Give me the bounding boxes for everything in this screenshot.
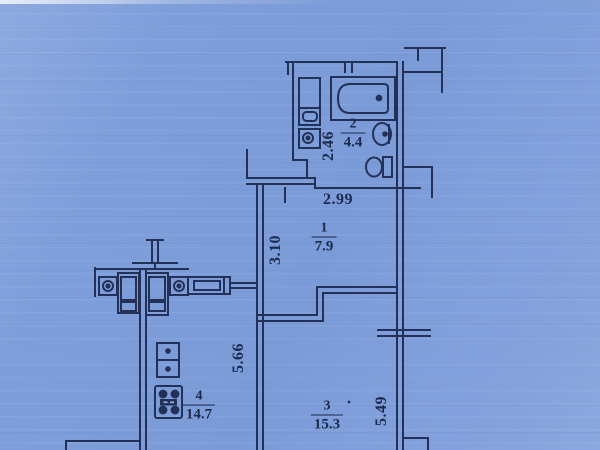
dim-bathroom-width: 2.46	[321, 131, 337, 161]
room-label-kitchen: 4 14.7	[183, 390, 215, 423]
room-area: 7.9	[312, 237, 337, 255]
room-area: 15.3	[311, 415, 343, 433]
kitchen-connector-wall	[230, 283, 257, 288]
dim-living-depth: 5.49	[374, 396, 390, 426]
right-outer-wall	[397, 62, 403, 450]
entry-wall-stub	[403, 167, 432, 197]
dim-text: 3.10	[267, 235, 284, 265]
room-area: 14.7	[183, 405, 215, 423]
vent-box-right-icon	[170, 277, 188, 295]
vent-box-left-icon	[99, 277, 117, 295]
hallway-wall-stub	[247, 150, 285, 202]
room-number: 3	[324, 400, 331, 415]
hallway-left-wall	[257, 184, 263, 450]
paper-speck	[348, 401, 351, 404]
vent-shaft-1-icon	[118, 273, 139, 313]
kitchen-top-tick-marks	[133, 240, 177, 269]
kitchen-sink-icon	[157, 343, 179, 377]
room-area: 4.4	[341, 133, 366, 151]
room-number: 1	[321, 222, 328, 237]
room-label-hallway: 1 7.9	[312, 222, 337, 255]
bathroom-cabinet-icon	[299, 78, 320, 125]
bathroom-bottom-wall	[247, 178, 420, 188]
bottom-left-wall	[66, 441, 140, 450]
top-right-wall	[403, 48, 445, 92]
stove-icon	[155, 386, 182, 418]
room-label-living: 3 15.3	[311, 400, 343, 433]
room-label-bathroom: 2 4.4	[341, 118, 366, 151]
dim-hallway-width: 2.99	[323, 192, 353, 208]
floor-plan-photo: 2.46 2.99 3.10 5.66 5.49 2 4.4 1 7.9 4 1…	[0, 0, 600, 450]
dim-text: 2.99	[323, 191, 353, 208]
bathroom-top-wall	[286, 62, 397, 74]
vent-duct-icon	[188, 277, 230, 294]
washing-machine-icon	[299, 129, 320, 148]
dim-text: 5.66	[230, 343, 247, 373]
dim-text: 2.46	[320, 131, 337, 161]
room-number: 2	[350, 118, 357, 133]
dim-text: 5.49	[373, 396, 390, 426]
room-number: 4	[196, 390, 203, 405]
dim-hallway-depth: 3.10	[268, 235, 284, 265]
vent-shaft-2-icon	[146, 273, 168, 315]
toilet-icon	[366, 157, 392, 177]
bottom-right-wall	[403, 438, 428, 450]
bathtub-icon	[331, 77, 395, 120]
floor-plan-drawing	[0, 0, 600, 450]
wash-basin-icon	[373, 123, 391, 145]
dim-kitchen-depth: 5.66	[231, 343, 247, 373]
hallway-bottom-stepped-wall	[257, 287, 397, 321]
